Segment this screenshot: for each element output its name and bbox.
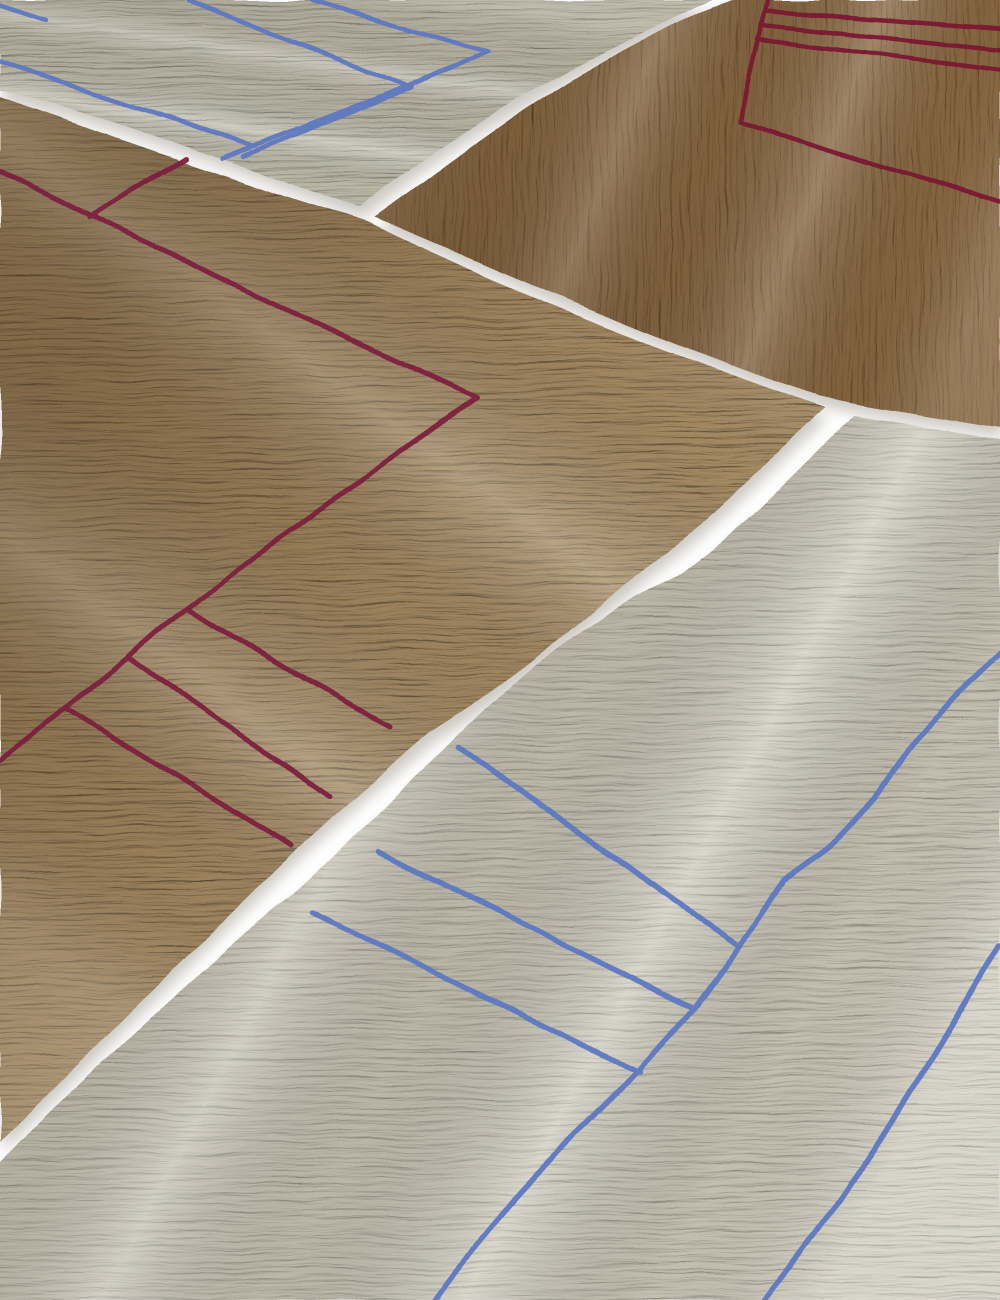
- rug-photo-svg: [0, 0, 1000, 1300]
- photo-canvas: [0, 0, 1000, 1300]
